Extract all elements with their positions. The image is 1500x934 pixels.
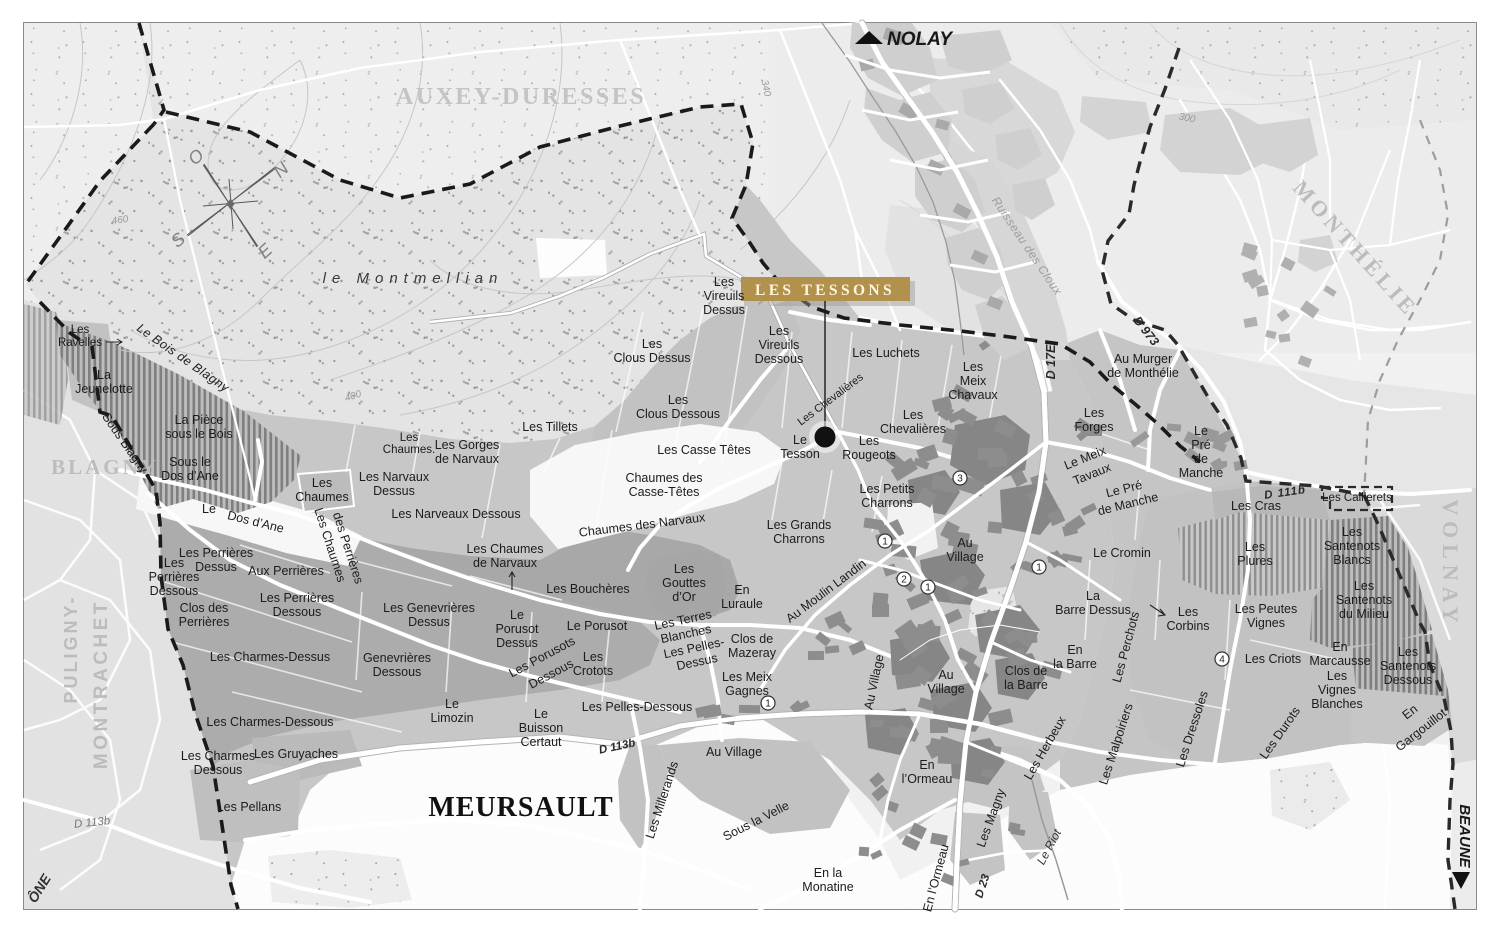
svg-text:Rougeots: Rougeots [842,448,896,462]
svg-text:Les Criots: Les Criots [1245,652,1301,666]
svg-text:le Montmellian: le Montmellian [323,270,504,287]
svg-text:Les: Les [674,562,694,576]
svg-text:Les Peutes: Les Peutes [1235,602,1298,616]
svg-text:MONTRACHET: MONTRACHET [91,599,112,769]
svg-text:Meix: Meix [960,374,987,388]
svg-text:Les Charmes-Dessus: Les Charmes-Dessus [210,650,330,664]
svg-text:Les: Les [859,434,879,448]
svg-text:de: de [1194,452,1208,466]
svg-text:Le: Le [510,608,524,622]
svg-text:NOLAY: NOLAY [887,29,954,50]
svg-text:MEURSAULT: MEURSAULT [428,792,613,823]
svg-text:Dessus: Dessus [373,484,415,498]
svg-text:Les: Les [400,432,419,444]
svg-text:PULIGNY-: PULIGNY- [61,594,81,703]
svg-text:Les Charmes-Dessous: Les Charmes-Dessous [206,715,333,729]
svg-text:Vignes: Vignes [1247,616,1285,630]
svg-text:En: En [734,583,749,597]
svg-text:Chevalières: Chevalières [880,422,946,436]
svg-text:Corbins: Corbins [1166,619,1209,633]
svg-text:VOLNAY: VOLNAY [1438,500,1463,629]
svg-text:Les Petits: Les Petits [860,482,915,496]
svg-text:Les Gorges: Les Gorges [435,438,500,452]
svg-text:la Barre: la Barre [1004,678,1048,692]
svg-text:Dessous: Dessous [373,665,422,679]
svg-text:En: En [1067,643,1082,657]
svg-text:Les Gruyaches: Les Gruyaches [254,747,338,761]
svg-text:BEAUNE: BEAUNE [1456,804,1473,868]
svg-text:En: En [1332,640,1347,654]
svg-text:Santenots: Santenots [1324,539,1380,553]
svg-text:Chaumes: Chaumes [295,490,349,504]
svg-text:Gouttes: Gouttes [662,576,706,590]
svg-text:2: 2 [901,575,907,586]
svg-text:Monatine: Monatine [802,880,853,894]
svg-text:Jeunelotte: Jeunelotte [75,382,133,396]
svg-text:Les: Les [1178,605,1198,619]
svg-text:1: 1 [925,583,931,594]
svg-text:3: 3 [957,474,963,485]
svg-text:La: La [1086,589,1100,603]
svg-text:Santenots: Santenots [1336,593,1392,607]
svg-text:1: 1 [765,699,771,710]
svg-text:Vireuils: Vireuils [704,289,745,303]
svg-text:sous le Bois: sous le Bois [165,427,232,441]
svg-text:Dessous: Dessous [1384,673,1433,687]
svg-text:Casse-Têtes: Casse-Têtes [629,485,700,499]
svg-text:Les: Les [312,476,332,490]
svg-text:Les Meix: Les Meix [722,670,773,684]
svg-text:Chaumes des: Chaumes des [625,471,702,485]
svg-text:de Narvaux: de Narvaux [435,452,500,466]
svg-text:Les: Les [164,556,184,570]
svg-text:Dessus: Dessus [195,560,237,574]
svg-text:Ravelles: Ravelles [58,337,102,349]
svg-text:Limozin: Limozin [430,711,473,725]
svg-text:La Pièce: La Pièce [175,413,224,427]
svg-text:Plures: Plures [1237,554,1272,568]
svg-text:Les: Les [71,324,90,336]
svg-text:Dessous: Dessous [273,605,322,619]
svg-text:Sous le: Sous le [169,455,211,469]
svg-text:Les: Les [642,337,662,351]
svg-text:Clos de: Clos de [731,632,773,646]
svg-text:Les Perrières: Les Perrières [179,546,253,560]
svg-text:Les: Les [714,275,734,289]
svg-text:1: 1 [882,537,888,548]
svg-text:Manche: Manche [1179,466,1224,480]
svg-text:Les Bouchères: Les Bouchères [546,582,629,596]
svg-text:Les: Les [668,393,688,407]
svg-text:Dessous: Dessous [755,352,804,366]
svg-text:Perrières: Perrières [179,615,230,629]
svg-text:Les: Les [769,324,789,338]
svg-text:En la: En la [814,866,843,880]
svg-text:AUXEY-DURESSES: AUXEY-DURESSES [396,84,646,110]
svg-text:Les: Les [1245,540,1265,554]
svg-text:Au Village: Au Village [706,745,762,759]
svg-text:Les: Les [1084,406,1104,420]
svg-text:d’Or: d’Or [672,590,696,604]
svg-text:Au: Au [957,536,972,550]
svg-text:Genevrières: Genevrières [363,651,431,665]
svg-text:Blanches: Blanches [1311,697,1362,711]
svg-text:Village: Village [927,682,964,696]
svg-text:Les Casse Têtes: Les Casse Têtes [657,443,751,457]
svg-text:Les: Les [1354,579,1374,593]
svg-text:Chaumes.: Chaumes. [383,444,435,456]
svg-text:Vireuils: Vireuils [759,338,800,352]
svg-text:Les Narvaux: Les Narvaux [359,470,430,484]
svg-text:Les Genevrières: Les Genevrières [383,601,475,615]
svg-text:Les Pellans: Les Pellans [217,800,282,814]
svg-text:1: 1 [1036,563,1042,574]
svg-text:Tesson: Tesson [780,447,820,461]
svg-text:Barre Dessus: Barre Dessus [1055,603,1131,617]
svg-text:Forges: Forges [1075,420,1114,434]
svg-text:Les Cras: Les Cras [1231,499,1281,513]
svg-text:En: En [919,758,934,772]
svg-text:Les Grands: Les Grands [767,518,832,532]
svg-text:Le: Le [793,433,807,447]
svg-text:Clous Dessus: Clous Dessus [613,351,690,365]
svg-text:Le: Le [445,697,459,711]
svg-text:Chavaux: Chavaux [948,388,998,402]
svg-text:Les: Les [903,408,923,422]
svg-text:Dessous: Dessous [150,584,199,598]
svg-text:La: La [97,368,111,382]
svg-text:Les Chaumes: Les Chaumes [466,542,543,556]
svg-text:Les: Les [583,650,603,664]
svg-text:Vignes: Vignes [1318,683,1356,697]
svg-text:Dessus: Dessus [496,636,538,650]
svg-text:Clos des: Clos des [180,601,229,615]
svg-text:Mazeray: Mazeray [728,646,777,660]
svg-text:Clous Dessous: Clous Dessous [636,407,720,421]
svg-text:Les Charmes: Les Charmes [181,749,255,763]
svg-text:Gagnes: Gagnes [725,684,769,698]
svg-text:Pré: Pré [1191,438,1211,452]
svg-text:4: 4 [1219,655,1225,666]
svg-text:Les Perrières: Les Perrières [260,591,334,605]
svg-text:Blancs: Blancs [1333,553,1371,567]
svg-text:Dessous: Dessous [194,763,243,777]
svg-text:Les: Les [1398,645,1418,659]
svg-text:Dessus: Dessus [703,303,745,317]
svg-text:Dessus: Dessus [408,615,450,629]
svg-text:de Monthélie: de Monthélie [1107,366,1179,380]
svg-text:Marcausse: Marcausse [1309,654,1370,668]
svg-text:Les Tillets: Les Tillets [522,420,578,434]
svg-text:Les: Les [963,360,983,374]
svg-text:Dos d’Ane: Dos d’Ane [161,469,219,483]
svg-text:Buisson: Buisson [519,721,564,735]
svg-text:Les Narveaux Dessous: Les Narveaux Dessous [391,507,520,521]
svg-text:Le: Le [1194,424,1208,438]
svg-text:Charrons: Charrons [773,532,824,546]
svg-text:Les: Les [1342,525,1362,539]
svg-text:Le Porusot: Le Porusot [567,619,628,633]
svg-text:Aux Perrières: Aux Perrières [248,564,324,578]
svg-text:l’Ormeau: l’Ormeau [902,772,953,786]
svg-text:la Barre: la Barre [1053,657,1097,671]
svg-text:Le Cromin: Le Cromin [1093,546,1151,560]
svg-text:Village: Village [946,550,983,564]
svg-text:Les Pelles-Dessous: Les Pelles-Dessous [582,700,692,714]
svg-text:Les: Les [1327,669,1347,683]
svg-text:D 17E: D 17E [1044,344,1058,379]
svg-text:Au: Au [938,668,953,682]
svg-text:Santenots: Santenots [1380,659,1436,673]
svg-text:Certaut: Certaut [521,735,563,749]
svg-text:Crotots: Crotots [573,664,613,678]
svg-text:Le: Le [202,502,216,516]
svg-text:de Narvaux: de Narvaux [473,556,538,570]
svg-text:Clos de: Clos de [1005,664,1047,678]
svg-text:Perrières: Perrières [149,570,200,584]
svg-text:Le: Le [534,707,548,721]
svg-text:Charrons: Charrons [861,496,912,510]
svg-text:du Milieu: du Milieu [1339,607,1389,621]
svg-text:Au Murger: Au Murger [1114,352,1172,366]
svg-text:Luraule: Luraule [721,597,763,611]
svg-text:Porusot: Porusot [495,622,539,636]
svg-text:Les Luchets: Les Luchets [852,346,919,360]
svg-text:Les Caillerets: Les Caillerets [1322,492,1392,504]
svg-text:LES TESSONS: LES TESSONS [755,282,895,299]
